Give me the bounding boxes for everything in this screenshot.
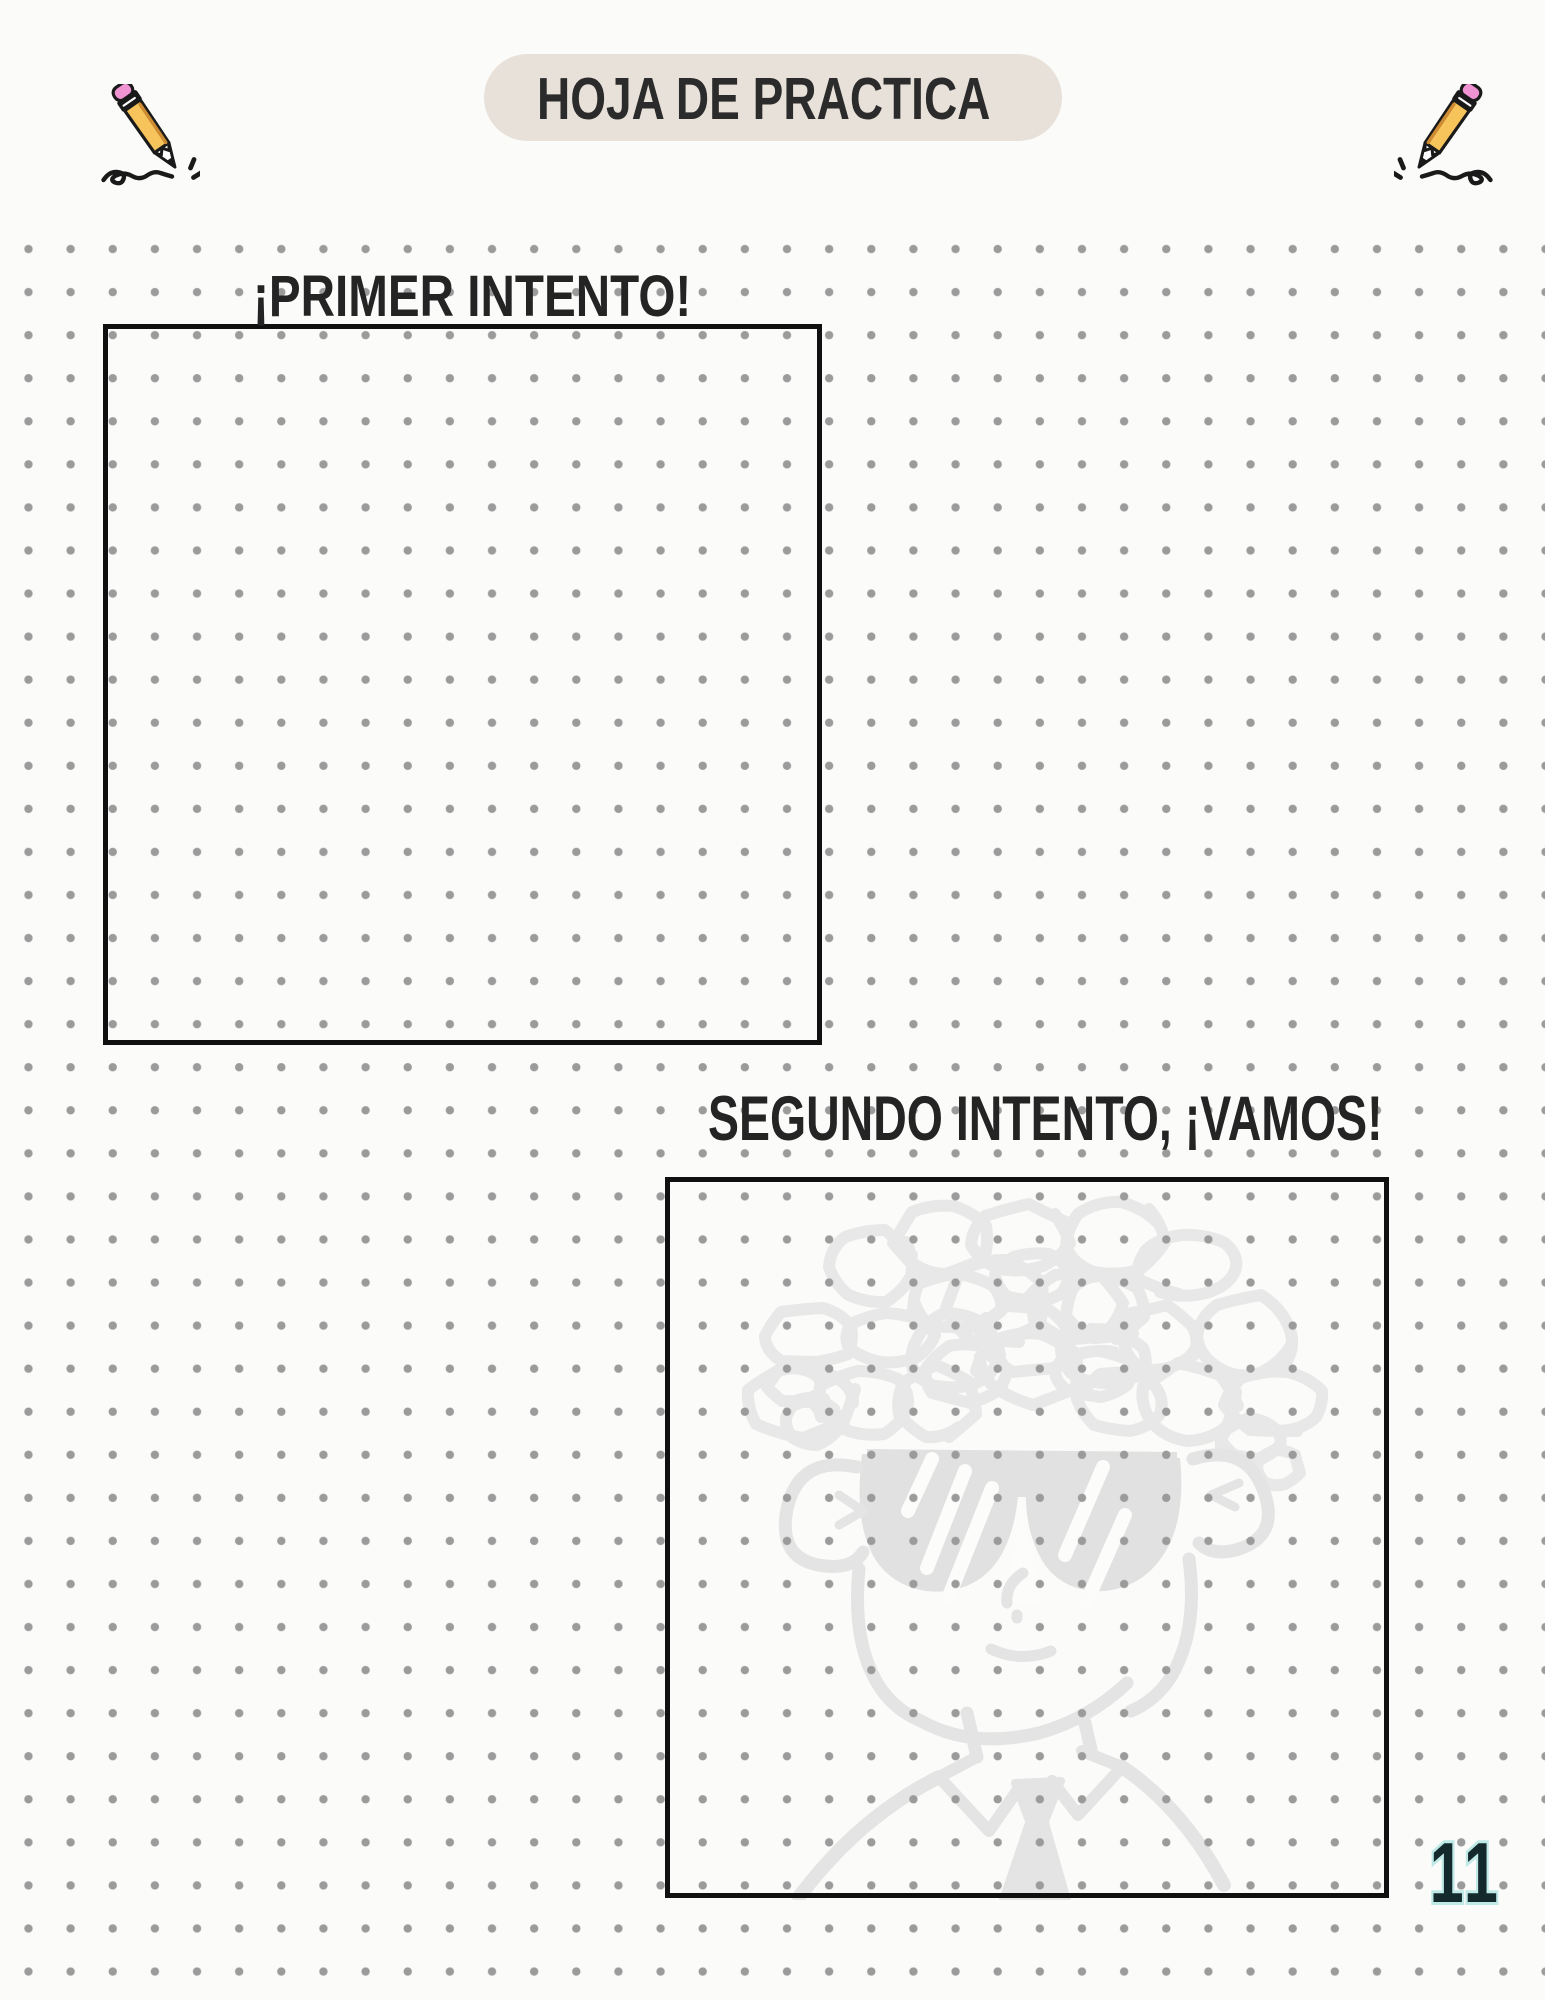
svg-text:11: 11 [1430, 1825, 1502, 1920]
